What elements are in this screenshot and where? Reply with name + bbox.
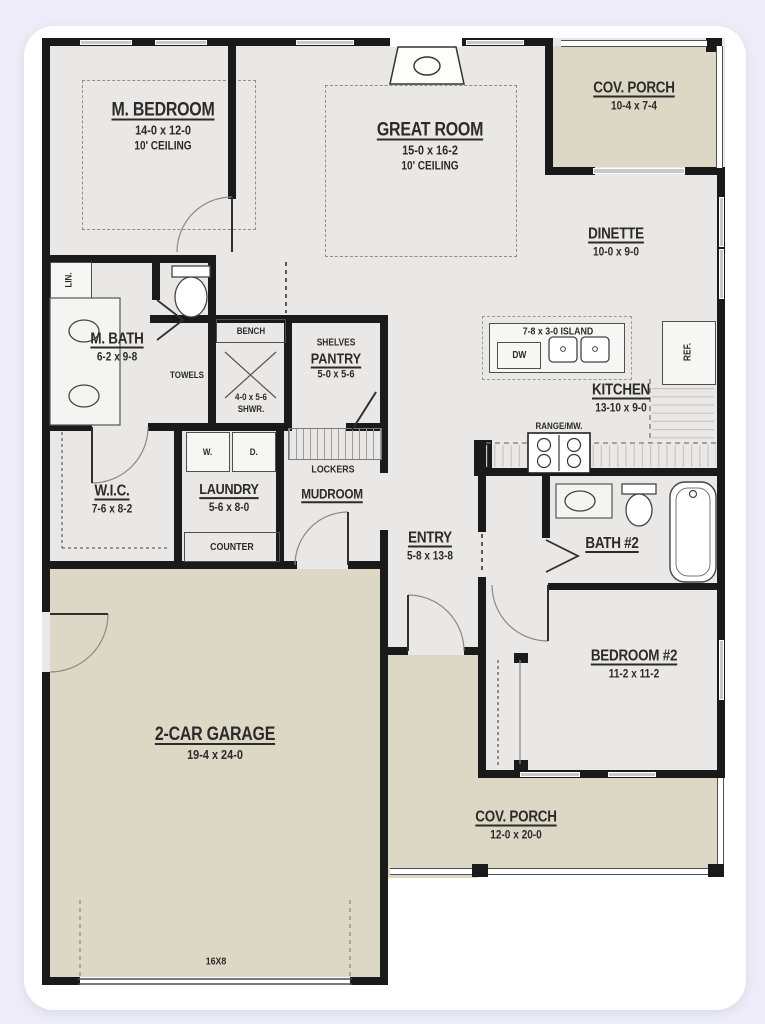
room-dims: 6-2 x 9-8 (90, 350, 143, 365)
room-label-dinette: DINETTE 10-0 x 9-0 (588, 225, 644, 260)
room-label-great-room: GREAT ROOM 15-0 x 16-2 10' CEILING (377, 119, 483, 174)
toilet-tank (622, 484, 656, 494)
towels-text: TOWELS (170, 370, 204, 382)
room-ceiling: 10' CEILING (377, 159, 483, 174)
room-dims: 12-0 x 20-0 (475, 828, 556, 843)
island-text: 7-8 x 3-0 ISLAND (523, 325, 594, 338)
towels-label: TOWELS (170, 370, 204, 382)
door-arc (92, 427, 148, 483)
room-label-wic: W.I.C. 7-6 x 8-2 (92, 482, 132, 517)
lockers-text: LOCKERS (311, 463, 354, 476)
island-sink (581, 337, 609, 362)
room-label-pantry: SHELVES PANTRY 5-0 x 5-6 (311, 338, 361, 383)
range-text: RANGE/MW. (535, 421, 582, 433)
garage-door-size-text: 16X8 (206, 955, 227, 968)
room-label-entry: ENTRY 5-8 x 13-8 (407, 529, 453, 564)
room-label-cov-porch-upper: COV. PORCH 10-4 x 7-4 (593, 79, 674, 114)
room-dims: 11-2 x 11-2 (591, 667, 677, 682)
toilet-icon (175, 277, 207, 317)
room-name: MUDROOM (301, 485, 363, 503)
room-label-cov-porch-lower: COV. PORCH 12-0 x 20-0 (475, 808, 556, 843)
room-dims: 5-8 x 13-8 (407, 549, 453, 564)
shelves-label: SHELVES (311, 338, 361, 351)
island-sink (549, 337, 577, 362)
room-dims: 4-0 x 5-6 (235, 392, 267, 404)
island-label: 7-8 x 3-0 ISLAND (523, 325, 594, 338)
room-label-bedroom-2: BEDROOM #2 11-2 x 11-2 (591, 647, 677, 682)
room-name: BATH #2 (585, 534, 638, 554)
room-label-laundry: LAUNDRY 5-6 x 8-0 (199, 481, 258, 515)
room-ceiling: 10' CEILING (112, 139, 215, 154)
toilet-icon (626, 494, 652, 526)
door-arcs (50, 197, 548, 672)
room-dims: 10-0 x 9-0 (588, 245, 644, 260)
room-name: 2-CAR GARAGE (155, 723, 275, 747)
room-dims: 13-10 x 9-0 (592, 401, 650, 416)
door-leaves (50, 197, 548, 651)
garage-door-size-label: 16X8 (206, 955, 227, 968)
room-name: BEDROOM #2 (591, 647, 677, 667)
room-name: PANTRY (311, 350, 361, 369)
bifold-door (546, 540, 578, 572)
lockers-label: LOCKERS (311, 463, 354, 476)
door-arc (295, 512, 348, 565)
floor-plan-page: BENCH W. D. COUNTER DW (0, 0, 765, 1024)
linen-label: LIN. (64, 272, 75, 287)
refrigerator-label: REF. (683, 343, 694, 361)
door-arc (50, 614, 108, 672)
door-arc (492, 585, 548, 641)
room-name: ENTRY (407, 529, 453, 549)
room-label-kitchen: KITCHEN 13-10 x 9-0 (592, 381, 650, 416)
room-name: COV. PORCH (593, 79, 674, 99)
room-name: KITCHEN (592, 381, 650, 401)
door-arc (408, 595, 464, 651)
room-dims: 5-6 x 8-0 (199, 500, 258, 515)
room-dims: 7-6 x 8-2 (92, 502, 132, 517)
room-name: LAUNDRY (199, 481, 258, 500)
room-dims: 5-0 x 5-6 (311, 369, 361, 383)
room-name: M. BATH (90, 330, 143, 350)
room-label-m-bath: M. BATH 6-2 x 9-8 (90, 330, 143, 365)
room-label-m-bedroom: M. BEDROOM 14-0 x 12-0 10' CEILING (112, 99, 215, 154)
room-dims: 19-4 x 24-0 (155, 747, 275, 763)
range-label: RANGE/MW. (535, 421, 582, 433)
room-label-garage: 2-CAR GARAGE 19-4 x 24-0 (155, 723, 275, 763)
room-dims: 14-0 x 12-0 (112, 122, 215, 138)
room-name: GREAT ROOM (377, 119, 483, 143)
door-arc (177, 197, 232, 252)
room-dims: 10-4 x 7-4 (593, 99, 674, 114)
toilet-tank (172, 266, 210, 277)
room-name: DINETTE (588, 225, 644, 245)
room-label-shower: 4-0 x 5-6 SHWR. (235, 392, 267, 416)
room-name: W.I.C. (92, 482, 132, 502)
fireplace-icon (390, 47, 464, 84)
room-name: COV. PORCH (475, 808, 556, 828)
room-dims: 15-0 x 16-2 (377, 142, 483, 158)
room-name: SHWR. (235, 404, 267, 416)
room-name: M. BEDROOM (112, 99, 215, 123)
room-label-bath-2: BATH #2 (585, 534, 638, 554)
room-label-mudroom: MUDROOM (301, 485, 363, 503)
